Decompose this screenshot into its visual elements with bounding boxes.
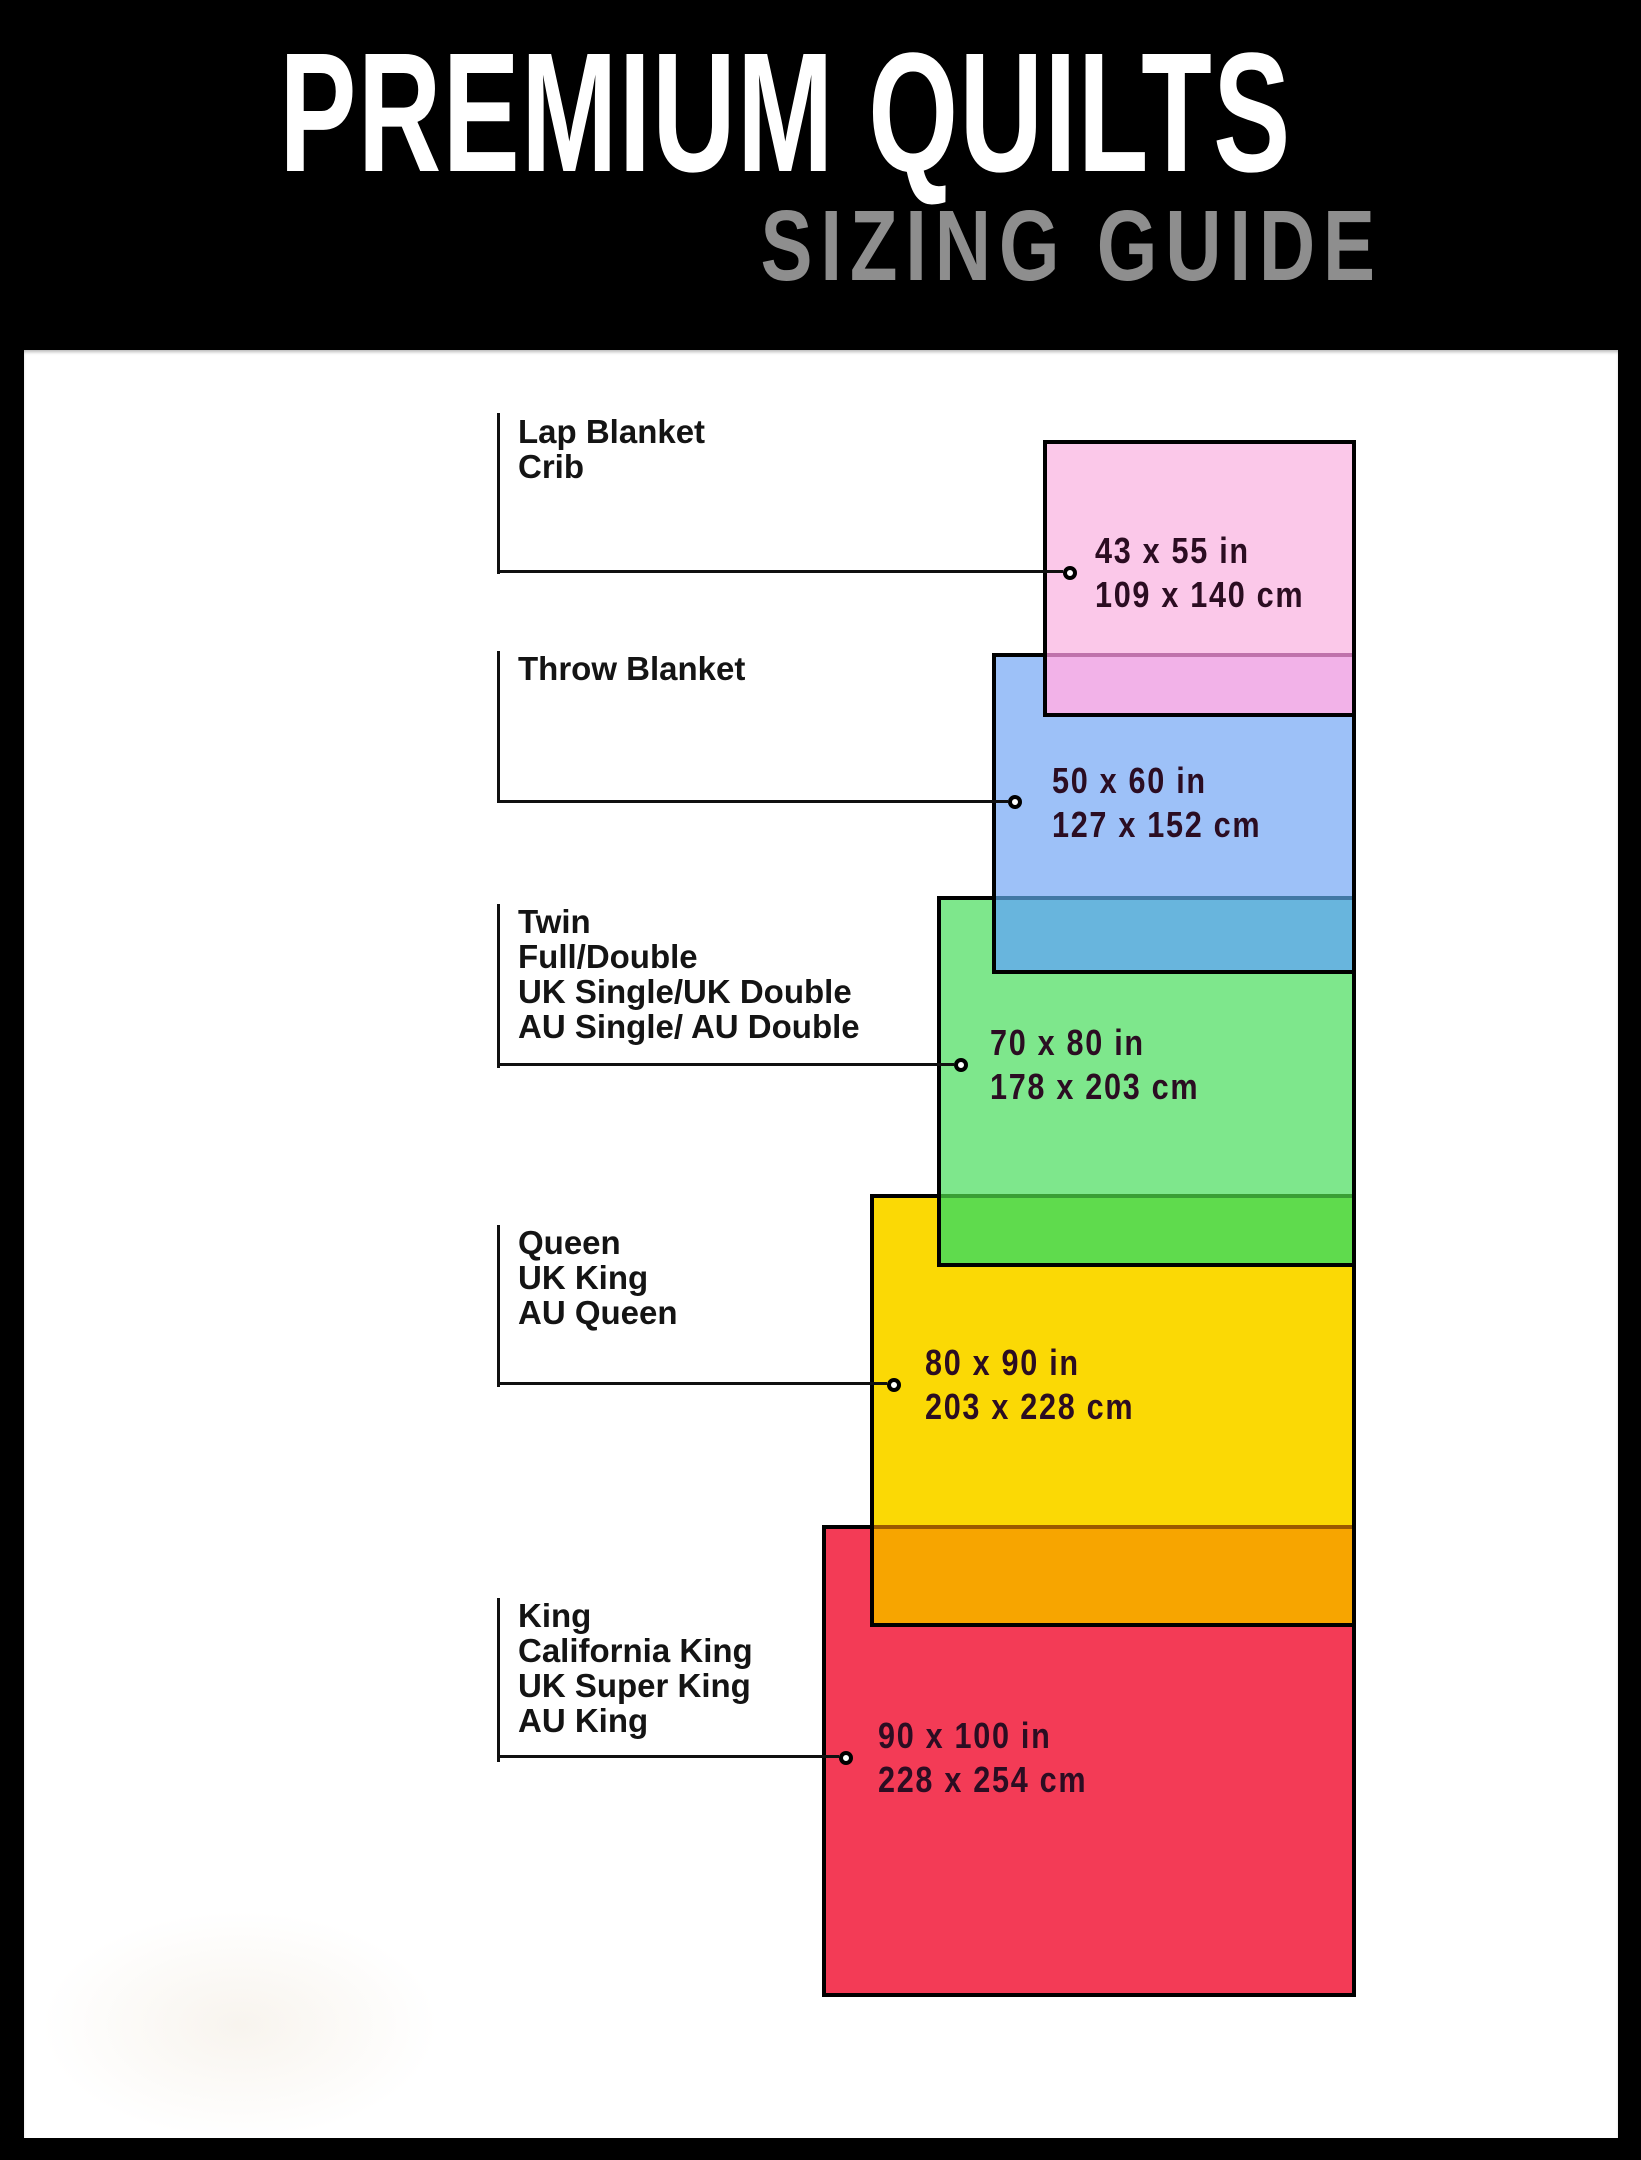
label-line: Twin: [518, 904, 860, 939]
connector-vertical-throw: [497, 651, 500, 803]
connector-ring-lap: [1063, 566, 1077, 580]
dimensions-twin: 70 x 80 in 178 x 203 cm: [990, 1021, 1199, 1109]
content-panel: [24, 350, 1618, 2138]
label-line: UK Single/UK Double: [518, 974, 860, 1009]
dimensions-inches: 90 x 100 in: [878, 1714, 1087, 1758]
dimensions-inches: 43 x 55 in: [1095, 529, 1304, 573]
label-line: Full/Double: [518, 939, 860, 974]
overlap-throw-over-twin: [996, 896, 1352, 970]
connector-vertical-lap: [497, 413, 500, 574]
label-throw-blanket: Throw Blanket: [518, 651, 745, 686]
label-line: UK King: [518, 1260, 678, 1295]
connector-horizontal-throw: [497, 800, 1008, 803]
dimensions-cm: 228 x 254 cm: [878, 1758, 1087, 1802]
connector-horizontal-king: [497, 1755, 839, 1758]
overlap-twin-over-queen: [941, 1194, 1352, 1263]
label-line: Throw Blanket: [518, 651, 745, 686]
dimensions-cm: 178 x 203 cm: [990, 1065, 1199, 1109]
dimensions-inches: 80 x 90 in: [925, 1341, 1134, 1385]
label-line: UK Super King: [518, 1668, 753, 1703]
dimensions-king: 90 x 100 in 228 x 254 cm: [878, 1714, 1087, 1802]
connector-vertical-queen: [497, 1225, 500, 1387]
label-queen: Queen UK King AU Queen: [518, 1225, 678, 1330]
quilt-sizing-infographic: PREMIUM QUILTS SIZING GUIDE Lap Blanket …: [0, 0, 1641, 2160]
connector-ring-queen: [887, 1378, 901, 1392]
label-line: Crib: [518, 449, 705, 484]
label-line: AU Single/ AU Double: [518, 1009, 860, 1044]
label-line: Lap Blanket: [518, 414, 705, 449]
connector-ring-twin: [954, 1058, 968, 1072]
overlap-queen-over-king: [874, 1525, 1352, 1623]
dimensions-lap-blanket: 43 x 55 in 109 x 140 cm: [1095, 529, 1304, 617]
label-lap-blanket: Lap Blanket Crib: [518, 414, 705, 484]
connector-ring-king: [839, 1751, 853, 1765]
label-line: California King: [518, 1633, 753, 1668]
page-subtitle: SIZING GUIDE: [761, 196, 1383, 296]
overlap-lap-over-throw: [1047, 653, 1352, 713]
dimensions-queen: 80 x 90 in 203 x 228 cm: [925, 1341, 1134, 1429]
label-king: King California King UK Super King AU Ki…: [518, 1598, 753, 1738]
connector-vertical-twin: [497, 904, 500, 1068]
label-line: AU King: [518, 1703, 753, 1738]
dimensions-inches: 70 x 80 in: [990, 1021, 1199, 1065]
label-line: King: [518, 1598, 753, 1633]
label-line: Queen: [518, 1225, 678, 1260]
dimensions-throw-blanket: 50 x 60 in 127 x 152 cm: [1052, 759, 1261, 847]
connector-vertical-king: [497, 1598, 500, 1762]
label-line: AU Queen: [518, 1295, 678, 1330]
connector-horizontal-queen: [497, 1382, 887, 1385]
connector-horizontal-lap: [497, 570, 1063, 573]
label-twin: Twin Full/Double UK Single/UK Double AU …: [518, 904, 860, 1044]
dimensions-cm: 203 x 228 cm: [925, 1385, 1134, 1429]
dimensions-cm: 127 x 152 cm: [1052, 803, 1261, 847]
background-smudge: [40, 1910, 440, 2140]
page-title: PREMIUM QUILTS: [228, 28, 1344, 198]
connector-horizontal-twin: [497, 1063, 954, 1066]
connector-ring-throw: [1008, 795, 1022, 809]
dimensions-inches: 50 x 60 in: [1052, 759, 1261, 803]
dimensions-cm: 109 x 140 cm: [1095, 573, 1304, 617]
